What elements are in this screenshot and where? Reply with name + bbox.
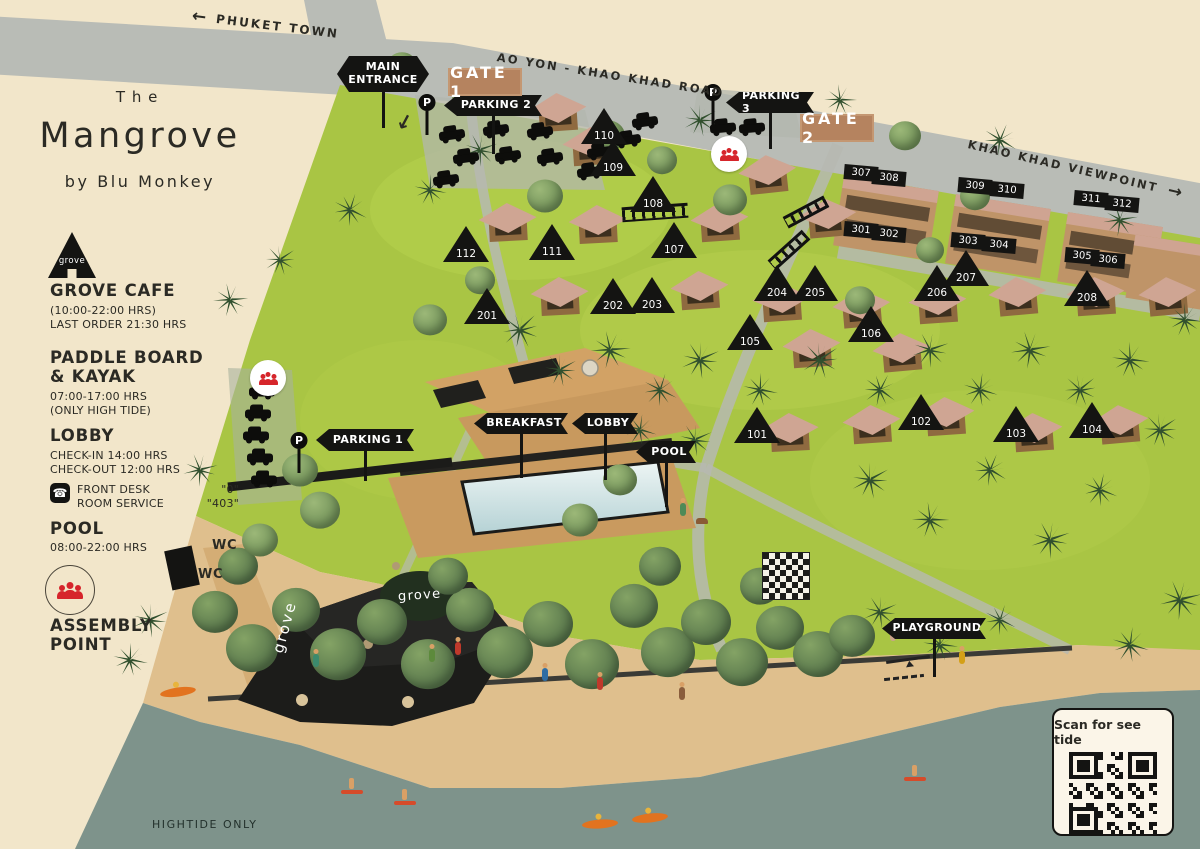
front-desk-label: FRONT DESK: [77, 483, 150, 497]
assembly-point-icon: [45, 565, 95, 615]
legend-lobby: LOBBY CHECK-IN 14:00 HRS CHECK-OUT 12:00…: [50, 426, 239, 511]
grove-cafe-last-order: LAST ORDER 21:30 HRS: [50, 318, 186, 332]
title-by-blu-monkey: by Blu Monkey: [35, 172, 245, 191]
front-desk-value: "0": [221, 483, 239, 497]
lobby-checkin: CHECK-IN 14:00 HRS: [50, 449, 239, 463]
pool-hours: 08:00-22:00 HRS: [50, 541, 147, 555]
wc-label-2: WC: [198, 567, 223, 582]
room-service-label: ROOM SERVICE: [77, 497, 164, 511]
tide-qr-panel: Scan for see tide: [1052, 708, 1174, 836]
legend-paddle: PADDLE BOARD & KAYAK 07:00-17:00 HRS (ON…: [50, 348, 204, 419]
paddle-heading-2: & KAYAK: [50, 367, 204, 386]
paddle-heading-1: PADDLE BOARD: [50, 348, 204, 367]
phone-icon: ☎: [50, 483, 70, 503]
legend-assembly: ASSEMBLY POINT: [50, 616, 153, 654]
grove-cafe-hours: (10:00-22:00 HRS): [50, 304, 186, 318]
gate-2-badge: GATE 2: [800, 114, 874, 142]
qr-code: [1069, 752, 1157, 834]
gate-1-badge: GATE 1: [448, 68, 522, 96]
grove-sign-text: grove: [398, 587, 442, 605]
title-the: The: [35, 88, 245, 106]
resort-title: The Mangrove by Blu Monkey: [35, 88, 245, 191]
assembly-heading-1: ASSEMBLY: [50, 616, 153, 635]
room-service-value: "403": [207, 497, 239, 511]
legend-pool: POOL 08:00-22:00 HRS: [50, 519, 147, 555]
lobby-checkout: CHECK-OUT 12:00 HRS: [50, 463, 239, 477]
wc-label-1: WC: [212, 538, 237, 553]
paddle-note: (ONLY HIGH TIDE): [50, 404, 204, 418]
legend-grove-cafe: GROVE CAFE (10:00-22:00 HRS) LAST ORDER …: [50, 281, 186, 333]
lobby-heading: LOBBY: [50, 426, 239, 445]
arrow-left-icon: ←: [191, 6, 208, 28]
paddle-hours: 07:00-17:00 HRS: [50, 390, 204, 404]
grove-icon-label: grove: [59, 256, 85, 266]
title-mangrove: Mangrove: [35, 116, 245, 156]
hightide-label: HIGHTIDE ONLY: [152, 818, 258, 831]
pool-heading: POOL: [50, 519, 147, 538]
resort-map: 1101091081121111072012022032042052062072…: [0, 0, 1200, 849]
grove-cafe-heading: GROVE CAFE: [50, 281, 186, 300]
qr-caption: Scan for see tide: [1054, 717, 1172, 747]
assembly-heading-2: POINT: [50, 635, 153, 654]
